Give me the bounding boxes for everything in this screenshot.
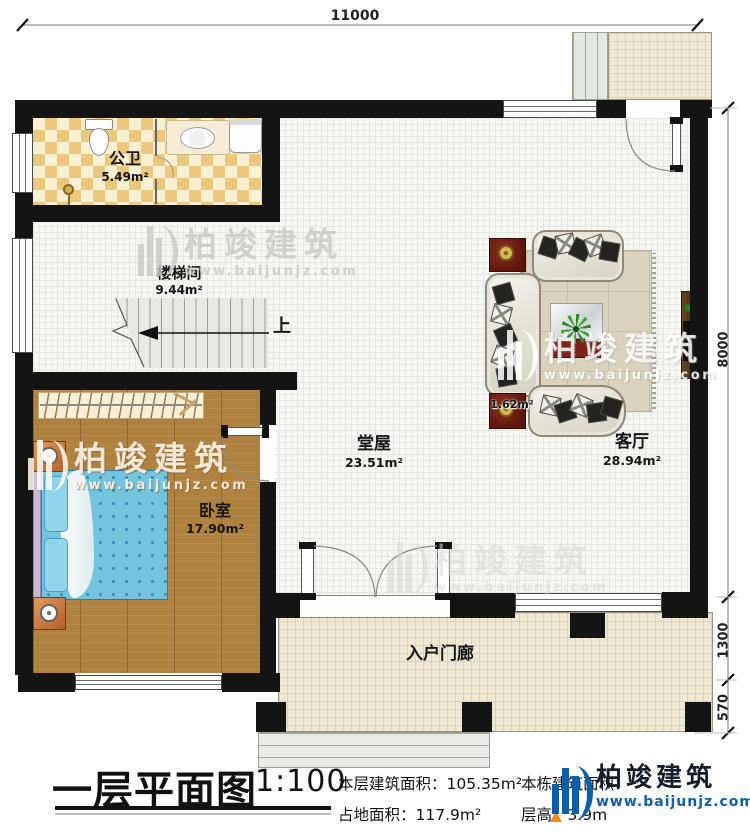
window-left-hall <box>12 238 33 353</box>
window-bedroom-bottom <box>75 675 222 690</box>
wall-right <box>690 118 708 592</box>
land-area-line: 占地面积：117.9m² <box>338 803 481 825</box>
land-area-value: 117.9m² <box>416 806 482 824</box>
entry-steps <box>258 732 490 768</box>
table-lamp <box>40 447 58 465</box>
company-logo-brand: 柏竣建筑 <box>596 764 750 794</box>
rug-fringe <box>652 253 656 409</box>
wall-hall-bottom <box>450 593 515 618</box>
room-label-bathroom: 公卫 5.49m² <box>80 151 170 185</box>
bedroom-door-leaf <box>222 427 268 436</box>
room-label-living: 客厅 28.94m² <box>592 434 672 470</box>
tv <box>683 321 690 361</box>
drawing-scale: 1:100 <box>255 764 346 799</box>
hall-area: 23.51m² <box>345 455 403 470</box>
sink <box>180 127 215 149</box>
wall-top <box>597 100 626 118</box>
dim-height-right: 8000 <box>717 328 732 372</box>
wall-left <box>15 353 33 675</box>
bathroom-name: 公卫 <box>109 149 141 168</box>
wall-corner-bottom-right <box>662 592 708 618</box>
potted-plant <box>561 314 591 344</box>
living-name: 客厅 <box>615 432 649 452</box>
company-logo: 柏竣建筑 www.baijunjz.com <box>550 764 750 822</box>
wall-left <box>15 100 33 133</box>
pillow <box>44 538 68 592</box>
room-label-bedroom: 卧室 17.90m² <box>170 503 260 537</box>
table-lamp <box>40 604 58 622</box>
bathroom-area: 5.49m² <box>101 170 148 184</box>
wall-bedroom-top <box>18 372 297 390</box>
porch-column <box>462 702 492 732</box>
wall-hall-bottom <box>263 593 300 618</box>
washing-machine <box>229 119 262 153</box>
stairs-up-label: 上 <box>270 318 294 337</box>
wall-bedroom-right <box>260 482 276 675</box>
sofa-pillow <box>598 240 620 262</box>
floor-area-label: 本层建筑面积： <box>338 775 447 793</box>
wall-top <box>18 100 503 118</box>
room-label-hall: 堂屋 23.51m² <box>334 436 414 472</box>
bed-headboard <box>33 468 41 600</box>
room-label-stairwell: 楼梯间 9.44m² <box>134 266 224 298</box>
side-door-leaf <box>672 118 681 171</box>
entry-door-leaf <box>301 543 314 599</box>
wall-top <box>680 100 712 118</box>
entry-porch-floor <box>278 612 713 732</box>
hall-name: 堂屋 <box>357 434 391 454</box>
living-area: 28.94m² <box>603 453 661 468</box>
title-underline-thick <box>55 806 331 810</box>
entry-door-threshold <box>300 595 450 618</box>
company-logo-icon <box>550 764 588 822</box>
entry-door-leaf <box>437 543 450 599</box>
side-door-opening <box>626 100 680 118</box>
bedroom-area: 17.90m² <box>186 521 244 536</box>
porch-column <box>256 702 286 732</box>
wall-bedroom-right <box>260 390 276 425</box>
floor-area-line: 本层建筑面积：105.35m² <box>338 772 522 794</box>
corner-area-label: 1.62m² <box>487 399 537 411</box>
wardrobe-rod <box>40 404 202 406</box>
dim-steps-depth: 570 <box>717 688 732 728</box>
wall-bathroom-right <box>262 100 280 222</box>
floor-area-value: 105.35m² <box>447 775 523 793</box>
wall-bedroom-bottom <box>222 673 280 692</box>
porch-column <box>685 702 711 732</box>
dim-width-top: 11000 <box>325 8 385 24</box>
window-top <box>503 100 597 118</box>
wall-bathroom-bottom <box>18 205 280 222</box>
floor-plan-canvas: 公卫 5.49m² 楼梯间 9.44m² 上 卧室 17.90m² 堂屋 23.… <box>0 0 750 839</box>
sofa-pillow <box>495 365 517 387</box>
title-underline-thin <box>55 813 331 815</box>
floor-drain <box>63 184 74 195</box>
company-logo-url: www.baijunjz.com <box>596 794 750 810</box>
window-left-bathroom <box>12 133 33 193</box>
porch-column <box>570 613 605 638</box>
window-hall-bottom <box>515 593 662 612</box>
land-area-label: 占地面积： <box>338 806 416 824</box>
bedroom-name: 卧室 <box>199 501 231 520</box>
side-porch-floor <box>608 32 712 100</box>
table-medallion <box>498 245 514 261</box>
stairwell-area: 9.44m² <box>155 283 202 297</box>
stairwell-name: 楼梯间 <box>156 264 201 282</box>
side-porch-steps <box>572 32 608 100</box>
room-label-porch: 入户门廊 <box>390 646 490 664</box>
wall-bedroom-bottom <box>18 673 75 692</box>
dim-porch-depth: 1300 <box>717 619 732 663</box>
pillow <box>44 476 68 532</box>
